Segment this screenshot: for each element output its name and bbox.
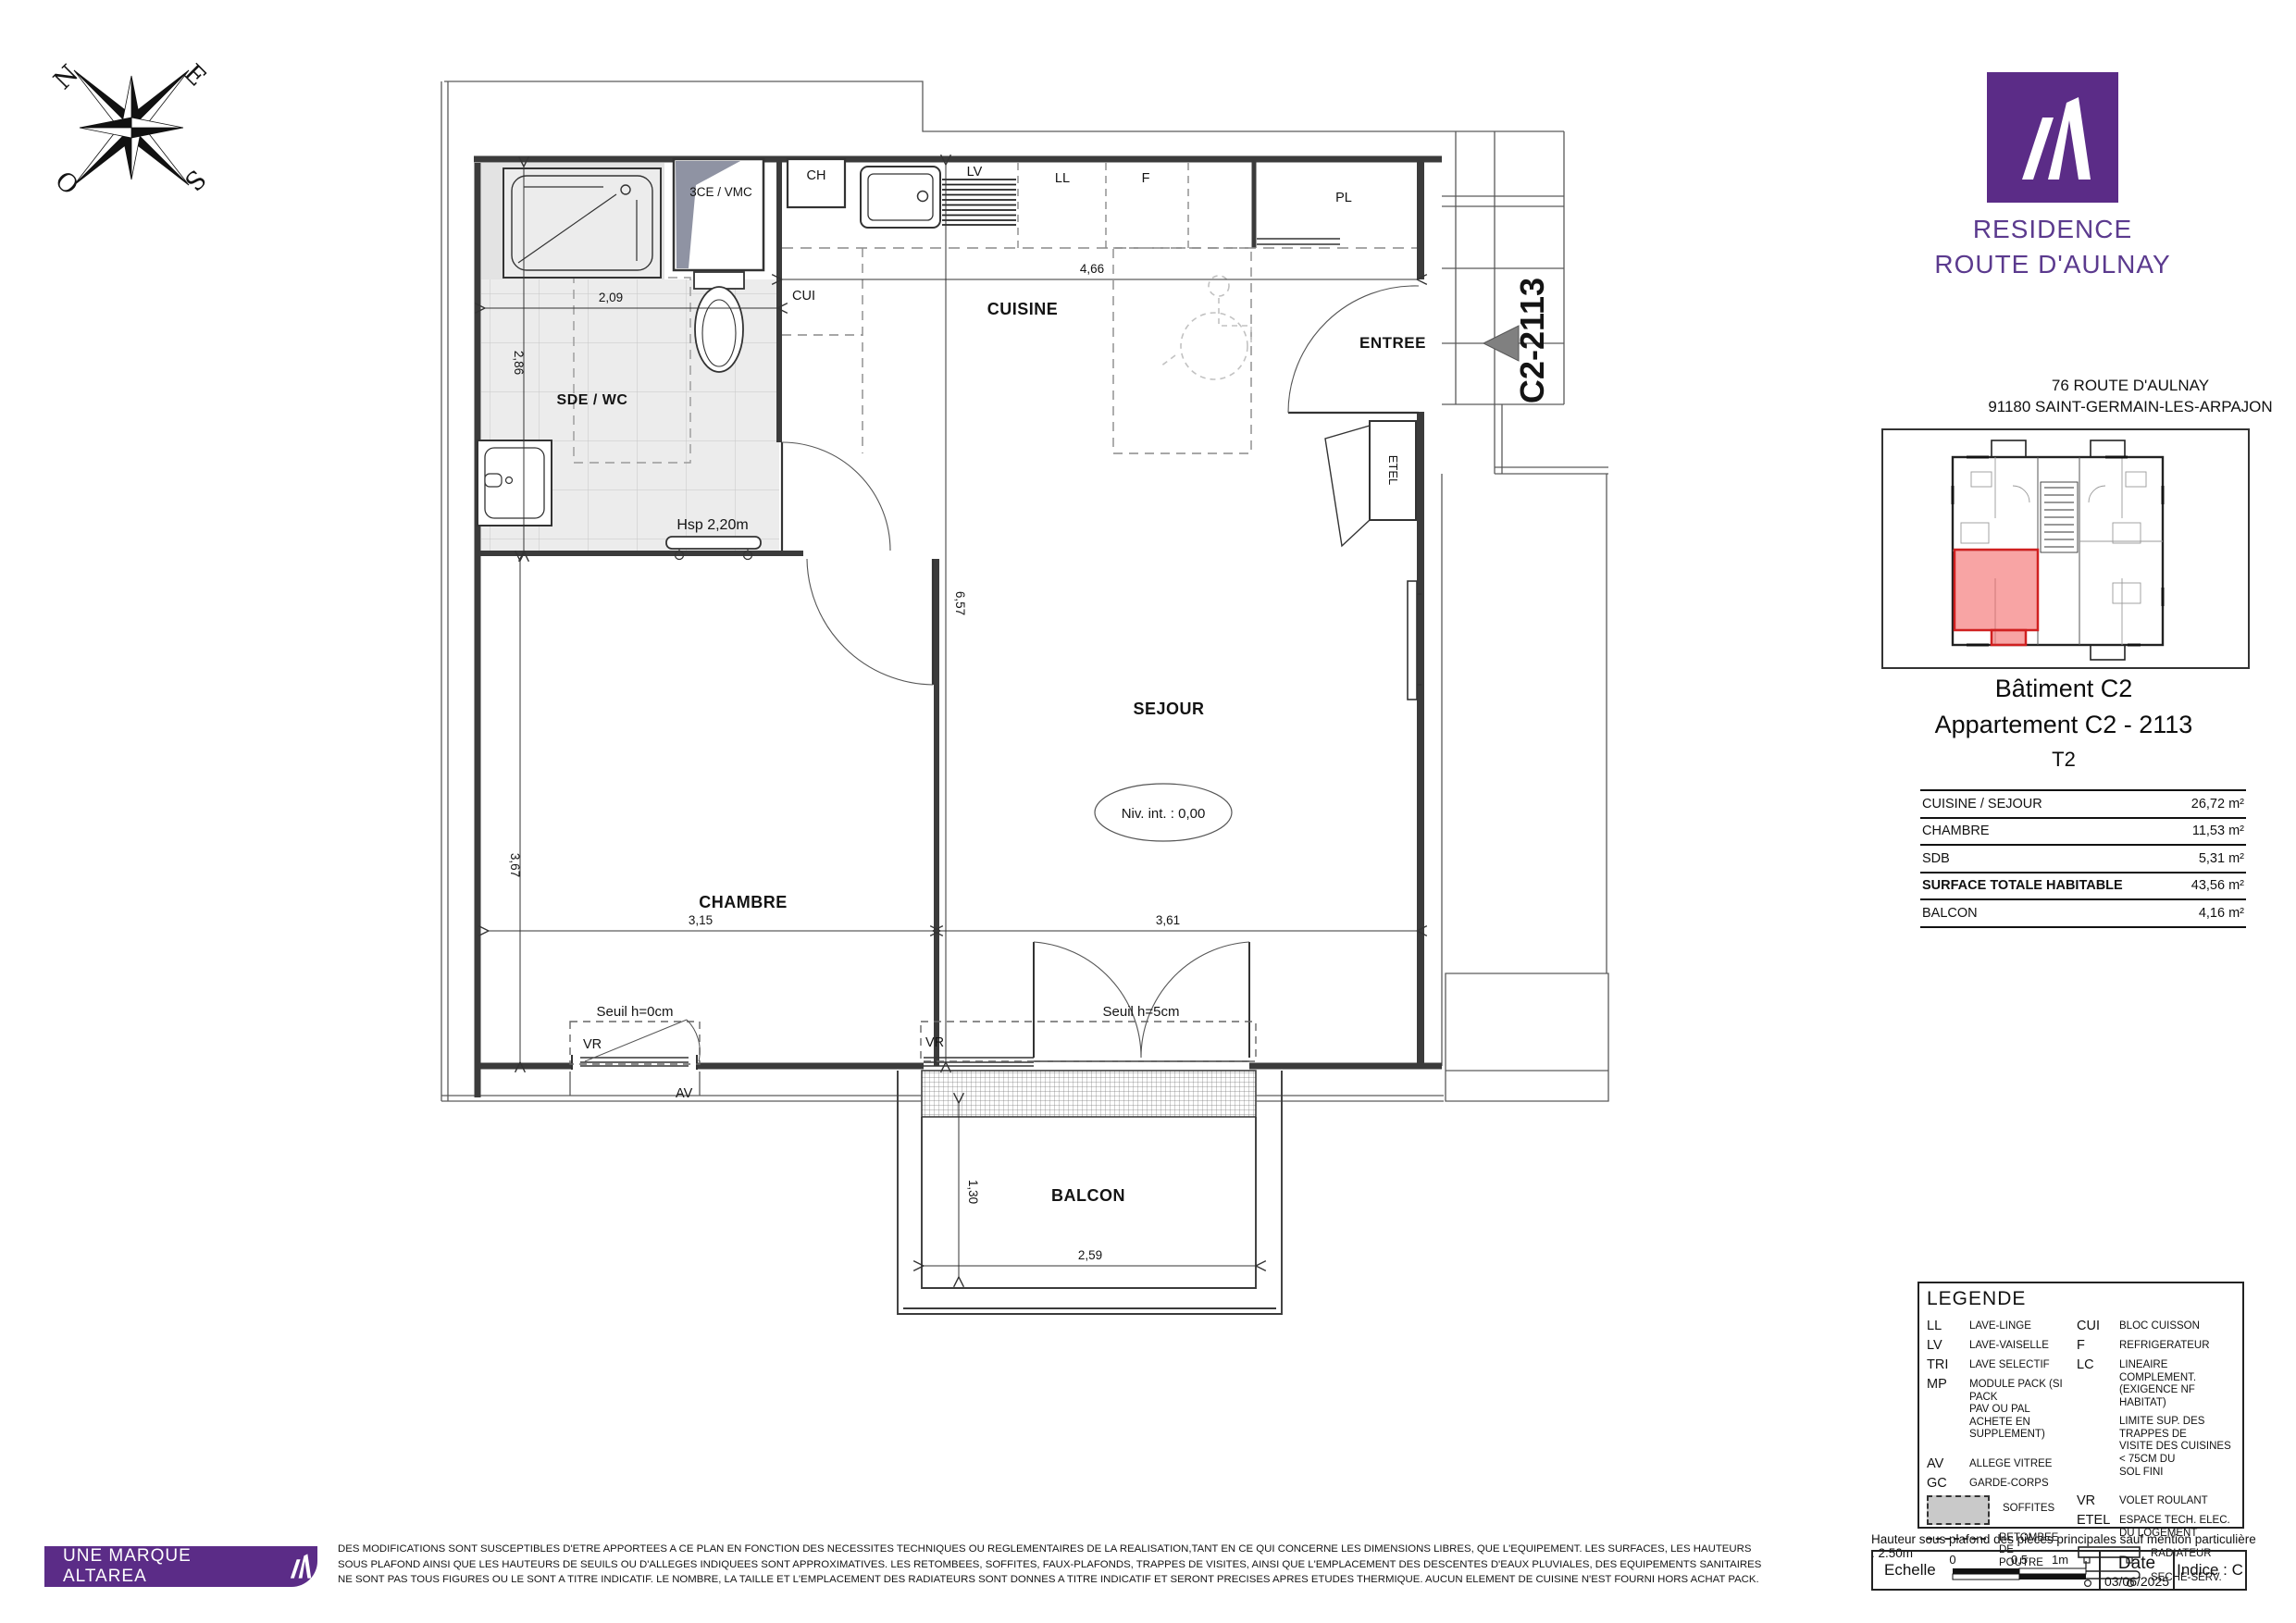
label-niveau: Niv. int. : 0,00 xyxy=(1122,806,1206,822)
legend-desc: BLOC CUISSON xyxy=(2119,1319,2200,1333)
dim-sde-depth: 2,86 xyxy=(512,351,526,375)
altarea-badge: UNE MARQUE ALTAREA xyxy=(44,1546,317,1587)
legend-abbr: F xyxy=(2077,1338,2119,1353)
dim-kitchen-width: 4,66 xyxy=(1080,262,1104,276)
technical-shaft xyxy=(674,159,763,270)
dim-depth: 6,57 xyxy=(953,591,967,615)
toilet-icon xyxy=(694,272,744,372)
label-hsp: Hsp 2,20m xyxy=(676,517,748,533)
surface-value: 43,56 m² xyxy=(2191,878,2244,893)
compass-o: O xyxy=(51,165,86,200)
surface-label: CHAMBRE xyxy=(1922,824,1990,838)
label-shaft: 3CE / VMC xyxy=(689,185,752,199)
closet-shelf xyxy=(1257,239,1340,244)
legend-desc: MODULE PACK (SI PACK PAV OU PAL ACHETE E… xyxy=(1969,1377,2073,1442)
room-label-cuisine: CUISINE xyxy=(987,300,1059,318)
surface-label: SURFACE TOTALE HABITABLE xyxy=(1922,878,2123,893)
soffits-swatch-icon xyxy=(1927,1495,1990,1525)
building-title: Bâtiment C2 xyxy=(1881,675,2246,703)
surface-value: 11,53 m² xyxy=(2192,824,2244,838)
table-row: CHAMBRE11,53 m² xyxy=(1920,819,2246,847)
legend-desc: ALLEGE VITREE xyxy=(1969,1456,2052,1471)
label-ll: LL xyxy=(1055,171,1070,186)
scale-tick-05: 0.5 xyxy=(2011,1553,2028,1567)
building-key-plan xyxy=(1881,428,2250,669)
badge-text: UNE MARQUE ALTAREA xyxy=(63,1546,274,1587)
scale-cell: Echelle 0 0.5 1m xyxy=(1873,1552,2101,1589)
title-block: Echelle 0 0.5 1m Date 03/06/2025 Indice … xyxy=(1871,1550,2247,1591)
scale-tick-1: 1m xyxy=(2052,1553,2068,1567)
brand-logo xyxy=(1987,72,2118,203)
legend-abbr xyxy=(2077,1414,2119,1479)
dim-bedroom-depth: 3,67 xyxy=(508,853,522,877)
etel-box xyxy=(1325,421,1416,546)
legend-desc: SOFFITES xyxy=(2003,1495,2054,1525)
residence-name-line2: ROUTE D'AULNAY xyxy=(1868,250,2238,279)
dishwasher-hatch xyxy=(942,180,1016,225)
legend-abbr: GC xyxy=(1927,1476,1969,1491)
legend-desc: LAVE SELECTIF xyxy=(1969,1357,2050,1372)
legend-title: LEGENDE xyxy=(1927,1288,2026,1310)
label-pl: PL xyxy=(1335,191,1352,205)
compass-e: E xyxy=(178,59,211,93)
disclaimer-line: SOUS PLAFOND AINSI QUE LES HAUTEURS DE S… xyxy=(338,1557,1860,1573)
legend-abbr: TRI xyxy=(1927,1357,1969,1372)
legend-desc: LIMITE SUP. DES TRAPPES DE VISITE DES CU… xyxy=(2119,1414,2240,1479)
residence-name-line1: RESIDENCE xyxy=(1868,215,2238,244)
table-row: BALCON4,16 m² xyxy=(1920,900,2246,928)
room-label-entree: ENTREE xyxy=(1359,334,1426,352)
date-cell: Date 03/06/2025 xyxy=(2101,1552,2175,1589)
disclaimer-line: DES MODIFICATIONS SONT SUSCEPTIBLES D'ET… xyxy=(338,1542,1860,1557)
date-value: 03/06/2025 xyxy=(2101,1574,2173,1589)
unit-reference: C2-2113 xyxy=(1513,278,1551,403)
label-av: AV xyxy=(676,1086,693,1101)
doors xyxy=(782,286,1419,1058)
table-row-total: SURFACE TOTALE HABITABLE43,56 m² xyxy=(1920,873,2246,901)
address-line2: 91180 SAINT-GERMAIN-LES-ARPAJON xyxy=(1945,398,2296,416)
label-f: F xyxy=(1142,171,1150,186)
index-cell: Indice : C xyxy=(2175,1552,2245,1589)
room-floors xyxy=(481,163,1256,1117)
apartment-type: T2 xyxy=(1881,748,2246,772)
dim-bedroom-width: 3,15 xyxy=(689,913,713,927)
legend-abbr: LV xyxy=(1927,1338,1969,1353)
stairs-icon xyxy=(2041,482,2078,552)
legend-abbr: MP xyxy=(1927,1377,1969,1442)
address-line1: 76 ROUTE D'AULNAY xyxy=(1945,377,2296,395)
legend-abbr: LL xyxy=(1927,1319,1969,1333)
apartment-title: Appartement C2 - 2113 xyxy=(1881,711,2246,739)
legend-abbr: AV xyxy=(1927,1456,1969,1471)
surface-value: 26,72 m² xyxy=(2191,797,2244,811)
balcony-door-leaves xyxy=(1034,942,1249,1058)
disclaimer-text: DES MODIFICATIONS SONT SUSCEPTIBLES D'ET… xyxy=(338,1542,1860,1588)
surface-label: CUISINE / SEJOUR xyxy=(1922,797,2042,811)
water-heater-box xyxy=(788,159,845,207)
compass-rose-icon: N E S O xyxy=(48,59,211,199)
legend-desc: LINEAIRE COMPLEMENT. (EXIGENCE NF HABITA… xyxy=(2119,1357,2240,1409)
room-label-sejour: SEJOUR xyxy=(1133,700,1204,718)
table-row: CUISINE / SEJOUR26,72 m² xyxy=(1920,791,2246,819)
room-label-balcon: BALCON xyxy=(1051,1186,1125,1205)
surface-label: SDB xyxy=(1922,851,1950,866)
label-seuil-5: Seuil h=5cm xyxy=(1103,1004,1180,1020)
washbasin-icon xyxy=(478,440,552,526)
dim-balcony-depth: 1,30 xyxy=(966,1180,980,1204)
scale-tick-0: 0 xyxy=(1949,1553,1955,1567)
dim-balcony-width: 2,59 xyxy=(1078,1248,1102,1262)
room-label-sde: SDE / WC xyxy=(557,392,628,408)
legend-desc: REFRIGERATEUR xyxy=(2119,1338,2210,1353)
compass-n: N xyxy=(48,59,84,95)
roller-shutter-zone-living xyxy=(921,1022,1256,1061)
highlighted-unit xyxy=(1955,550,2038,645)
windows xyxy=(570,1020,1256,1070)
scale-bar-icon: 0 0.5 1m xyxy=(1947,1552,2095,1587)
radiator-icon xyxy=(1408,581,1417,700)
surface-value: 4,16 m² xyxy=(2199,906,2244,921)
lambda-logo-icon xyxy=(1987,72,2118,203)
badge-lambda-icon xyxy=(287,1552,317,1581)
label-seuil-0: Seuil h=0cm xyxy=(597,1004,674,1020)
surface-label: BALCON xyxy=(1922,906,1978,921)
sink-icon xyxy=(861,167,940,228)
surface-value: 5,31 m² xyxy=(2199,851,2244,866)
legend-abbr: CUI xyxy=(2077,1319,2119,1333)
legend-box: LEGENDE LLLAVE-LINGE LVLAVE-VAISELLE TRI… xyxy=(1917,1282,2244,1529)
legend-desc: LAVE-VAISELLE xyxy=(1969,1338,2049,1353)
label-vr-bedroom: VR xyxy=(583,1037,602,1052)
label-vr-living: VR xyxy=(925,1035,944,1050)
wheelchair-icon xyxy=(1160,276,1251,379)
legend-abbr: LC xyxy=(2077,1357,2119,1409)
room-label-chambre: CHAMBRE xyxy=(699,893,788,911)
legend-desc: LAVE-LINGE xyxy=(1969,1319,2031,1333)
date-label: Date xyxy=(2101,1554,2173,1574)
legend-abbr: VR xyxy=(2077,1493,2119,1508)
label-ch: CH xyxy=(807,168,826,183)
dim-living-width: 3,61 xyxy=(1156,913,1180,927)
label-cui: CUI xyxy=(792,289,815,304)
legend-desc: VOLET ROULANT xyxy=(2119,1493,2208,1508)
legend-desc: GARDE-CORPS xyxy=(1969,1476,2049,1491)
label-etel: ETEL xyxy=(1386,455,1400,486)
shower-tray-icon xyxy=(503,168,661,278)
kitchen-appliances xyxy=(788,159,1421,700)
floor-plan-page: N E S O xyxy=(0,0,2296,1623)
label-lv: LV xyxy=(967,165,983,180)
table-row: SDB5,31 m² xyxy=(1920,846,2246,873)
surface-table: CUISINE / SEJOUR26,72 m² CHAMBRE11,53 m²… xyxy=(1920,789,2246,928)
compass-s: S xyxy=(179,164,211,196)
disclaimer-line: NE SONT PAS TOUS FIGURES OU LE SONT A TI… xyxy=(338,1572,1860,1588)
scale-label: Echelle xyxy=(1884,1561,1936,1580)
dim-sde-width: 2,09 xyxy=(599,291,623,304)
